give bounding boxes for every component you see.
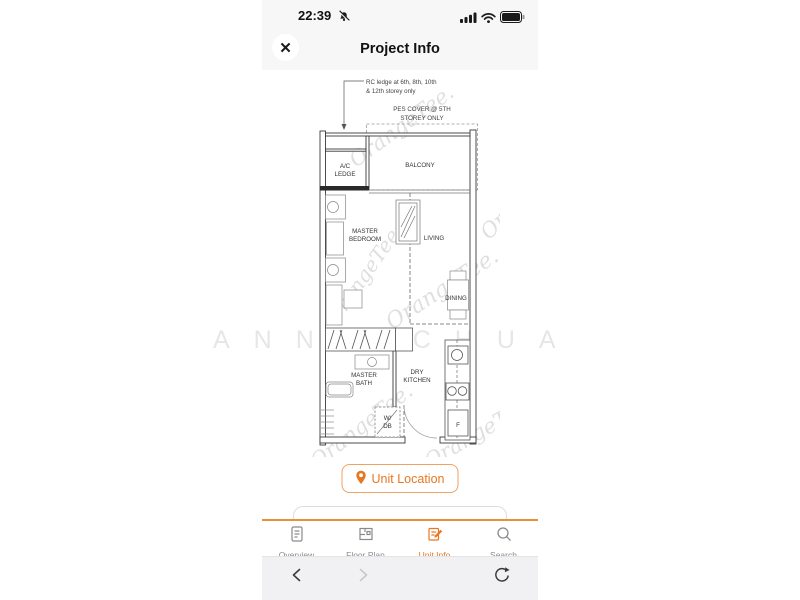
svg-text:MASTER: MASTER bbox=[351, 372, 377, 379]
bedroom-furniture bbox=[326, 195, 363, 325]
entrance-door-arc bbox=[404, 405, 437, 438]
battery-icon bbox=[500, 10, 525, 28]
pes-cover-note-line1: PES COVER @ 5TH bbox=[393, 106, 451, 113]
balcony-door bbox=[369, 190, 470, 193]
leader-line bbox=[344, 81, 364, 125]
wifi-icon bbox=[481, 10, 496, 28]
status-right-icons bbox=[460, 10, 525, 28]
wardrobe bbox=[326, 328, 413, 351]
svg-text:DINING: DINING bbox=[445, 295, 467, 302]
page-title: Project Info bbox=[262, 41, 538, 57]
browser-bar bbox=[262, 556, 538, 600]
tab-unit-info[interactable]: Unit Info bbox=[400, 521, 469, 556]
svg-text:W/: W/ bbox=[384, 415, 392, 422]
svg-text:BEDROOM: BEDROOM bbox=[349, 236, 381, 243]
tab-floor-plan[interactable]: Floor Plan bbox=[331, 521, 400, 556]
ac-ledge-wall bbox=[320, 186, 369, 191]
content-area: OrangeTee. OrangeTee. OrangeTee. OrangeT… bbox=[262, 70, 538, 519]
rc-ledge-note-line2: & 12th storey only bbox=[366, 88, 416, 95]
back-chevron-icon[interactable] bbox=[289, 566, 305, 589]
svg-text:A/C: A/C bbox=[340, 163, 351, 170]
tv-console bbox=[396, 200, 420, 244]
unit-location-button[interactable]: Unit Location bbox=[342, 464, 459, 493]
bell-slash-icon bbox=[338, 9, 350, 27]
unit-location-label: Unit Location bbox=[372, 472, 445, 486]
svg-text:DRY: DRY bbox=[411, 369, 424, 376]
rc-ledge-note-line1: RC ledge at 6th, 8th, 10th bbox=[366, 79, 437, 86]
top-chrome: 22:39 bbox=[262, 0, 538, 70]
phone-screen: 22:39 bbox=[262, 0, 538, 600]
svg-text:F: F bbox=[456, 422, 460, 429]
svg-text:BATH: BATH bbox=[356, 380, 372, 387]
search-icon bbox=[495, 525, 513, 548]
edit-document-icon bbox=[426, 525, 444, 548]
tab-overview[interactable]: Overview bbox=[262, 521, 331, 556]
svg-text:LEDGE: LEDGE bbox=[335, 171, 356, 178]
floorplan-icon bbox=[357, 525, 375, 548]
status-time: 22:39 bbox=[298, 8, 331, 23]
pes-cover-note-line2: STOREY ONLY bbox=[400, 115, 443, 122]
cellular-signal-icon bbox=[460, 10, 477, 28]
floorplan-image: RC ledge at 6th, 8th, 10th & 12th storey… bbox=[300, 72, 515, 457]
svg-text:MASTER: MASTER bbox=[352, 228, 378, 235]
screenshot-canvas: ANN CHUA 22:39 bbox=[0, 0, 800, 600]
svg-text:DB: DB bbox=[383, 423, 392, 430]
location-pin-icon bbox=[356, 470, 367, 488]
svg-text:LIVING: LIVING bbox=[424, 235, 444, 242]
svg-text:KITCHEN: KITCHEN bbox=[403, 377, 430, 384]
svg-text:BALCONY: BALCONY bbox=[405, 162, 435, 169]
document-icon bbox=[288, 525, 306, 548]
tab-bar: Overview Floor Plan bbox=[262, 521, 538, 556]
forward-chevron-icon[interactable] bbox=[355, 566, 371, 589]
tab-search[interactable]: Search bbox=[469, 521, 538, 556]
wd-db-closet bbox=[375, 407, 400, 437]
leader-arrow bbox=[342, 124, 347, 130]
reload-icon[interactable] bbox=[493, 566, 511, 589]
peeking-card[interactable] bbox=[293, 506, 507, 519]
